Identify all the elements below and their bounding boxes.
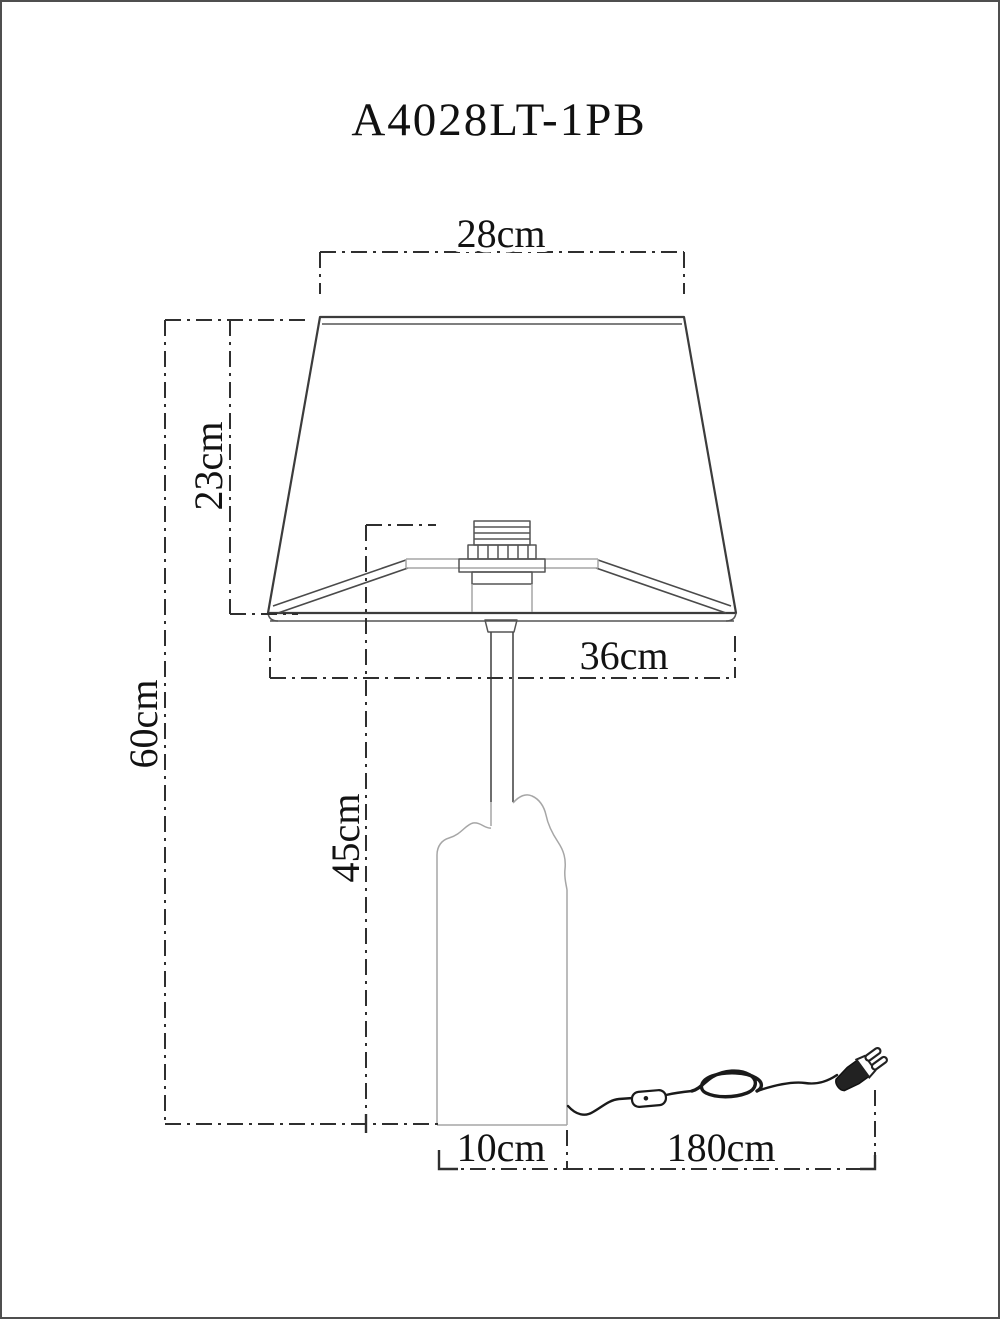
inline-switch — [631, 1090, 666, 1108]
stem-collar — [485, 620, 517, 632]
dimension-label-180cm: 180cm — [667, 1125, 776, 1170]
dimension-total-height: 60cm — [121, 320, 442, 1124]
socket-thread-lines — [474, 527, 530, 539]
dimension-label-36cm: 36cm — [580, 633, 669, 678]
cord-segment-body-to-switch — [568, 1098, 633, 1115]
dimension-stand-height: 45cm — [323, 525, 436, 1133]
stem-rod — [491, 632, 513, 802]
drawing-page: A4028LT-1PB 28cm — [0, 0, 1000, 1319]
lamp-technical-drawing: A4028LT-1PB 28cm — [2, 2, 1000, 1319]
cord-knot — [692, 1071, 761, 1097]
dimension-label-23cm: 23cm — [186, 422, 231, 511]
corner-tick-right — [860, 1155, 875, 1169]
socket-lower-cylinder — [472, 584, 532, 612]
power-cord — [568, 1045, 890, 1115]
socket-lock-ring — [472, 572, 532, 584]
dimension-shade-bottom-width: 36cm — [270, 633, 735, 678]
power-plug — [831, 1045, 889, 1096]
corner-tick-left — [439, 1150, 458, 1169]
spider-bar — [406, 559, 598, 568]
dimension-label-28cm: 28cm — [457, 211, 546, 256]
dimension-shade-height: 23cm — [186, 320, 298, 614]
spider-arm-left — [273, 560, 408, 613]
stem — [485, 620, 517, 826]
dimension-label-45cm: 45cm — [323, 794, 368, 883]
cord-segment-switch-to-knot — [666, 1091, 692, 1095]
dimension-base-width: 10cm — [439, 1125, 567, 1170]
cord-segment-knot-to-plug — [757, 1075, 837, 1091]
dimension-shade-top-width: 28cm — [320, 211, 684, 294]
body-left-edge-and-neck — [437, 823, 491, 1125]
dimension-cord-length: 180cm — [567, 1090, 875, 1170]
body-right-neck-and-edge — [513, 795, 567, 1125]
socket — [459, 521, 545, 612]
socket-rib-lines — [478, 545, 528, 559]
lamp-shade — [268, 317, 736, 621]
spider-arm-right — [596, 560, 731, 613]
dimension-label-60cm: 60cm — [121, 680, 166, 769]
glass-body — [437, 795, 567, 1125]
product-code-title: A4028LT-1PB — [351, 94, 646, 146]
dimension-label-10cm: 10cm — [457, 1125, 546, 1170]
switch-housing — [631, 1090, 666, 1108]
socket-flange — [459, 559, 545, 572]
